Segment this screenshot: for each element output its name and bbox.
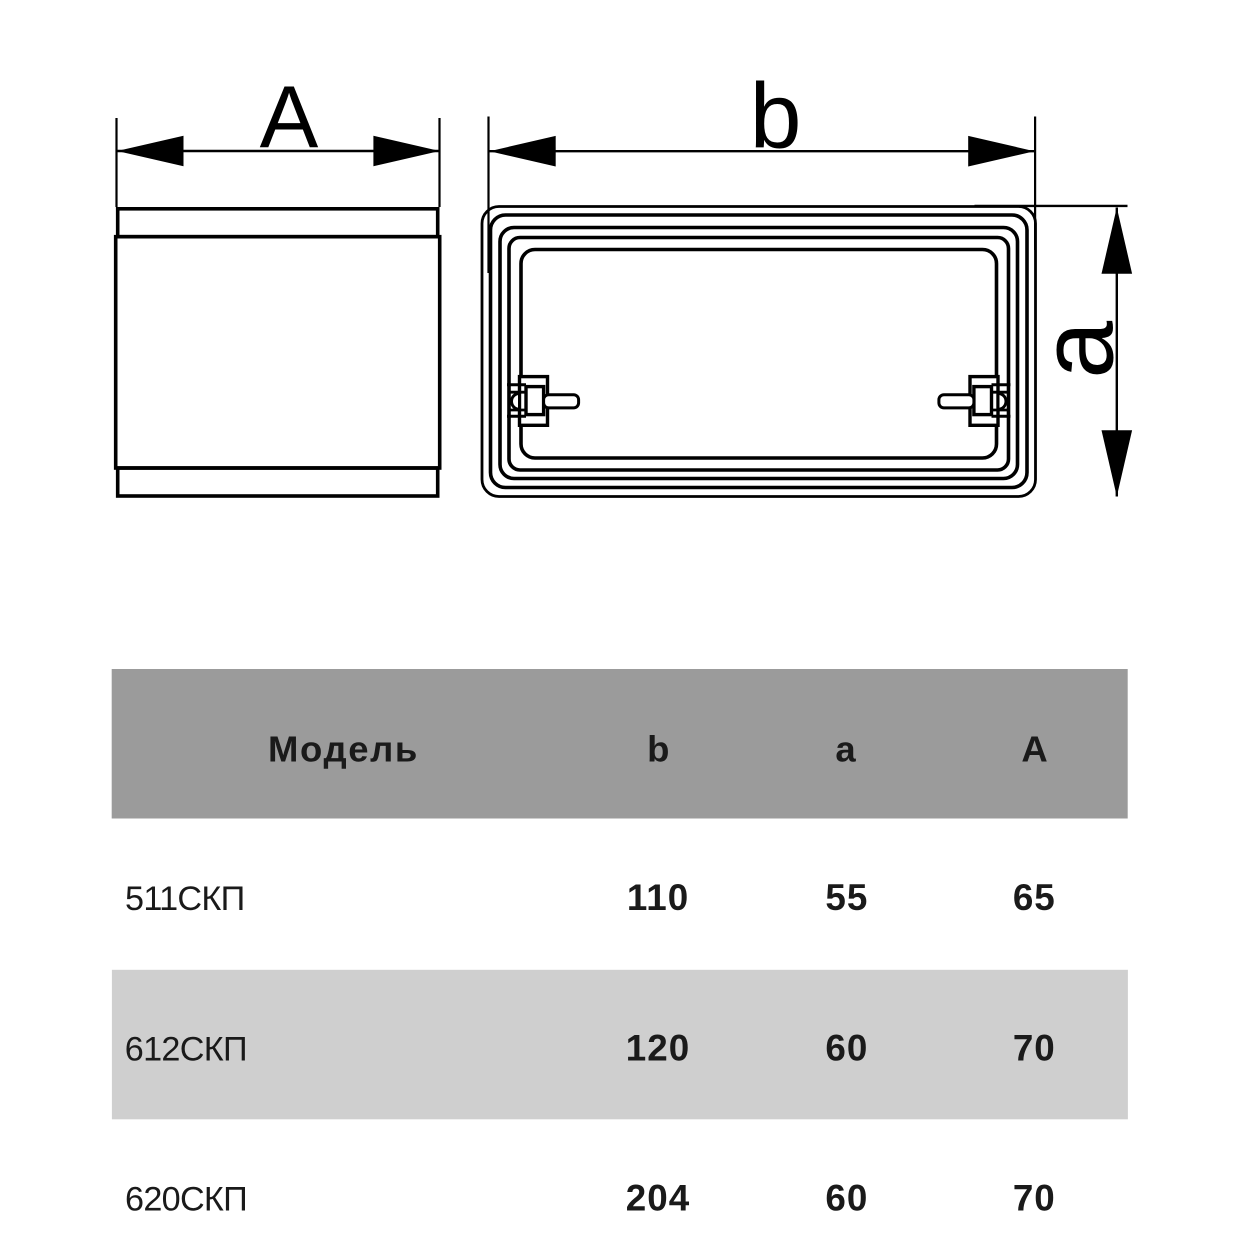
svg-text:A: A — [260, 68, 319, 167]
svg-text:Модель: Модель — [268, 729, 419, 770]
svg-text:204: 204 — [626, 1177, 690, 1218]
svg-text:65: 65 — [1013, 877, 1056, 918]
svg-text:120: 120 — [626, 1027, 690, 1068]
svg-text:60: 60 — [825, 1027, 868, 1068]
svg-text:620СКП: 620СКП — [125, 1181, 247, 1219]
svg-text:b: b — [750, 64, 802, 168]
svg-text:60: 60 — [825, 1177, 868, 1218]
svg-text:612СКП: 612СКП — [125, 1031, 247, 1069]
svg-text:55: 55 — [825, 877, 868, 918]
svg-text:b: b — [647, 729, 669, 770]
svg-text:110: 110 — [627, 877, 689, 918]
svg-text:70: 70 — [1013, 1177, 1056, 1218]
svg-text:A: A — [1021, 729, 1047, 770]
svg-text:a: a — [1020, 321, 1136, 379]
svg-text:a: a — [835, 729, 856, 770]
svg-text:70: 70 — [1013, 1027, 1056, 1068]
svg-text:511СКП: 511СКП — [125, 880, 244, 918]
